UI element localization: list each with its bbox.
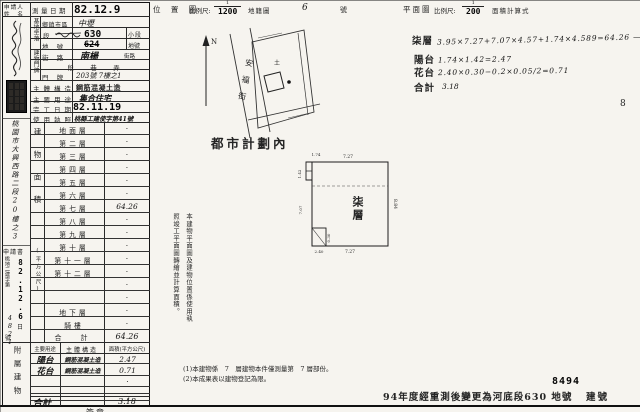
dim-bottom: 7.27 [345, 249, 355, 255]
dim-top: 7.27 [343, 154, 353, 160]
calc-planter-label: 花台 [414, 65, 435, 79]
annex-area: 2.47 [105, 355, 150, 364]
floor-area-value: · [104, 241, 150, 250]
street-suffix-label: 街路 [124, 52, 135, 60]
floor-area-value: · [104, 280, 150, 289]
applicant-name-label: 姓 名 [4, 10, 26, 18]
subject-building-outline [264, 72, 284, 92]
scale2-denominator: 200 [462, 6, 484, 16]
floor-area-value: · [104, 319, 150, 328]
floor-label: 地下層 [44, 307, 104, 317]
cadastral-map-number: 6 [302, 3, 308, 13]
floor-label: 第十層 [44, 242, 104, 252]
urban-planning-note: 都市計劃內 [211, 133, 289, 152]
scale-label-2: 比例尺: [434, 5, 456, 15]
section-number-stamp: 630 [84, 29, 101, 40]
floor-label: 第九層 [44, 229, 104, 239]
door-group-label: 建物門牌 [31, 50, 40, 79]
side-note-column-1: 本建物平面圖及建物位置係使用執 [184, 213, 193, 331]
annex-row: · [30, 376, 150, 387]
floor-row: · [30, 291, 150, 304]
dim-notch-width: 1.74 [312, 152, 321, 157]
annex-structure: 鋼筋混凝土造 [61, 355, 104, 364]
tick-mark [288, 113, 310, 118]
struck-handwriting [55, 30, 81, 38]
street-label: 街 路 [42, 52, 66, 62]
floor-row: · [30, 278, 150, 291]
floor-area-value: · [104, 176, 150, 185]
structure-label: 主體構造 [33, 83, 75, 93]
handwritten-name-scribble [4, 18, 28, 78]
floor-area-value: · [104, 228, 150, 237]
floor-total-label: 合 計 [44, 333, 104, 343]
floor-row: 地下層 · [30, 304, 150, 317]
floor-area-value: · [104, 124, 150, 133]
section-label: 段 [43, 30, 50, 40]
calc-floor-label: 柒層 [412, 33, 433, 47]
floor-total-value: 64.26 [104, 332, 150, 341]
building-number-label: 建號 [586, 389, 609, 403]
parcel-mark: 土 [274, 59, 280, 67]
receipt-date-stamp: 82.12.6 [16, 258, 25, 320]
floor-row: 第七層 64.26 [30, 200, 150, 213]
dim-left: 7.07 [298, 205, 303, 214]
annex-table: 陽台 鋼筋混凝土造 2.47 花台 鋼筋混凝土造 0.71 · · [30, 353, 150, 401]
scan-top-edge [0, 0, 640, 1]
survey-result-sheet: 申請人 姓 名 桃園市大興西路二段20樓之3 申請書 82.12.6 桃地二建字… [0, 0, 640, 412]
site-group-label: 基地坐落 [31, 18, 40, 48]
floor-plan-drawing: 7.27 1.74 1.42 7.07 8.84 7.27 2.40 0.30 [294, 146, 400, 256]
floor-row: 第四層 · [30, 161, 150, 174]
floor-area-value: · [104, 137, 150, 146]
floor-area-value: · [104, 306, 150, 315]
cadastral-number-suffix: 號 [340, 5, 347, 15]
signature-label-partial: 簽章 [86, 407, 106, 412]
applicant-address: 桃園市大興西路二段20樓之3 [10, 120, 20, 244]
scale-fraction-1: 1 1200 [214, 1, 241, 16]
floor-row: 第十層 · [30, 239, 150, 252]
resurvey-note: 94年度經重測後變更為河底段630 地號 [383, 389, 572, 403]
floor-row: 第六層 · [30, 187, 150, 200]
subsection-label: 小段 [128, 30, 142, 39]
day-label: 日 [17, 322, 23, 331]
number-suffix-label: 號 [5, 333, 11, 342]
floor-label: 第五層 [44, 177, 104, 187]
building-number-stamp: 8494 [552, 376, 580, 387]
scale-label-1: 比例尺: [189, 5, 211, 15]
annex-structure: 鋼筋混凝土造 [61, 366, 104, 375]
page-number: 8 [620, 99, 626, 109]
footnote-2: (2)本成果表以建物登記為限。 [183, 373, 270, 383]
annex-area: · [105, 377, 150, 386]
floor-label: 第四層 [44, 164, 104, 174]
structure-value: 鋼筋混凝土造 [76, 83, 121, 93]
area-calc-title: 面積計算式 [492, 5, 530, 15]
applicant-seal-stamp [6, 80, 27, 113]
annex-col-area: 面積(平方公尺) [104, 345, 150, 353]
plan-title: 平面圖 [403, 4, 432, 15]
dim-right: 8.84 [392, 199, 398, 209]
street-value: 南楊 [80, 49, 98, 62]
floor-label: 第六層 [44, 190, 104, 200]
floor-row: 第八層 · [30, 213, 150, 226]
annex-area: 0.71 [105, 366, 150, 375]
annex-total-label: 合計 [33, 396, 51, 409]
floor-label: 第八層 [44, 216, 104, 226]
floor-area-value: · [104, 163, 150, 172]
completion-label: 完工日期 [33, 104, 75, 114]
floor-label: 第七層 [44, 203, 104, 213]
door-label: 門 牌 [42, 72, 66, 82]
parcel-boundary [252, 30, 314, 128]
floor-row: 第五層 · [30, 174, 150, 187]
floor-label: 第二層 [44, 138, 104, 148]
floor-row: 騎樓 · [30, 317, 150, 330]
application-label: 申請書 [3, 247, 24, 256]
floor-area-value: · [104, 150, 150, 159]
annex-row: 陽台 鋼筋混凝土造 2.47 [30, 353, 150, 364]
footnote-1: (1)本建物係 7 層建物本件僅測量第 7 層部份。 [183, 363, 333, 373]
floor-area-value: 64.26 [104, 202, 150, 211]
planter-diagonal [312, 228, 326, 246]
completion-date-stamp: 82.11.19 [73, 102, 121, 113]
north-arrow-head [203, 35, 210, 46]
dim-notch-height: 1.42 [297, 169, 302, 178]
line [2, 245, 30, 246]
road-edge [250, 28, 270, 132]
lot-label: 地 號 [42, 41, 66, 51]
calc-total-label: 合計 [414, 80, 435, 94]
floor-row: 第二層 · [30, 135, 150, 148]
floor-area-value: · [104, 189, 150, 198]
calc-balcony-label: 陽台 [414, 52, 435, 66]
annex-group-label: 附屬建物 [11, 346, 23, 403]
floor-label: 地面層 [44, 125, 104, 135]
district-value: 中壢 [78, 18, 94, 29]
side-note-column-2: 照竣工平面圖轉繪並計算面積。 [171, 213, 180, 331]
location-map-drawing: N 土 [192, 18, 342, 140]
district-label: 鄉鎮市區 [42, 20, 68, 29]
file-number-prefix: 桃地二建字第 [4, 256, 11, 316]
line [40, 16, 41, 80]
lot-line [298, 33, 308, 115]
calc-total-value: 3.18 [442, 82, 459, 91]
floor-row: 第九層 · [30, 226, 150, 239]
floor-row: 第三層 · [30, 148, 150, 161]
floor-area-value: · [104, 267, 150, 276]
line [2, 118, 30, 119]
calc-floor-expression: 3.95×7.27+7.07×4.57+1.74×4.589=64.26 — [437, 32, 640, 46]
use-label: 主要用途 [33, 94, 75, 104]
calc-planter-expression: 2.40×0.30−0.2×0.05/2=0.71 [438, 66, 569, 77]
annex-total-value: 3.18 [104, 397, 150, 406]
floor-label: 騎樓 [44, 320, 104, 330]
door-value: 203號 7樓之1 [76, 71, 122, 81]
annex-row: 花台 鋼筋混凝土造 0.71 [30, 364, 150, 375]
floor-row: 地面層 · [30, 122, 150, 135]
floor-row: 第十二層 · [30, 265, 150, 278]
dim-planter-width: 2.40 [315, 249, 324, 254]
annex-row: · [30, 387, 150, 394]
calc-balcony-expression: 1.74×1.42=2.47 [438, 54, 512, 64]
survey-date-label: 測量日期 [32, 5, 68, 15]
cross-road-line [248, 104, 320, 120]
floor-area-table: 地面層 · 第二層 · 第三層 · 第四層 · 第五層 · [30, 122, 150, 330]
cadastral-map-label: 地籍圖 [248, 5, 271, 15]
floor-label: 第十一層 [44, 255, 104, 265]
plan-floor-label: 柒層 [349, 196, 365, 228]
north-label: N [211, 38, 217, 46]
scale1-denominator: 1200 [214, 6, 241, 16]
floor-area-value: · [104, 215, 150, 224]
lot-suffix-label: 地號 [128, 41, 140, 50]
annex-group-label-text: 附屬建物 [11, 346, 23, 403]
floor-area-value: · [104, 254, 150, 263]
scale-fraction-2: 1 200 [462, 1, 484, 16]
annex-col-use: 主要用途 [30, 345, 60, 353]
floor-row: 第十一層 · [30, 252, 150, 265]
floor-label: 第三層 [44, 151, 104, 161]
survey-date-stamp: 82.12.9 [74, 3, 120, 16]
floor-area-value: · [104, 293, 150, 302]
floor-label: 第十二層 [44, 268, 104, 278]
dim-planter-height: 0.30 [326, 233, 331, 242]
building-location-dot [287, 80, 291, 84]
